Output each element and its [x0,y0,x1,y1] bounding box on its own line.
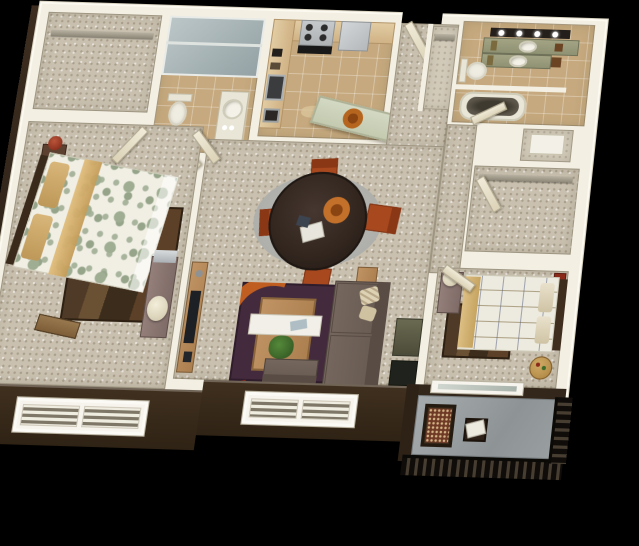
centerpiece-tray [322,196,352,223]
dining-chair-east [363,203,401,234]
window-pane [249,398,299,419]
armless-chair [262,358,319,383]
vanity-sink-1 [518,40,537,52]
facade-living [196,380,415,442]
bath-sink [221,99,244,120]
pillow [534,316,551,344]
vanity-box [551,57,562,67]
window-pane [20,404,81,427]
refrigerator [338,21,372,52]
drum-side-table [528,356,553,380]
window-pane [81,406,141,429]
table-runner [248,313,323,336]
tv [183,291,201,344]
linen-shelf [529,134,566,155]
counter-item [270,62,281,69]
facade-bedroom1 [0,383,202,450]
closet-shelf [51,30,154,39]
room-walk-in-closet-2 [464,165,579,254]
window-pane [301,400,351,421]
shower-glass-rail [166,41,262,47]
closet-shelf [479,174,573,183]
balcony-side-table [463,418,489,442]
room-linen-closet [520,128,574,162]
room-master-bath [451,21,595,126]
living-window [241,392,357,428]
room-walk-in-closet-1 [33,12,163,113]
toilet [167,101,189,126]
floor-plan-scene [0,0,639,546]
sofa-cushion [324,335,372,387]
vanity-light [229,125,235,130]
chair-cushion [425,408,452,443]
counter-item [272,49,283,57]
magazine [290,319,307,331]
dresser-mirror [153,250,177,263]
vanity-counter-lower [480,53,552,69]
bath-vanity [214,91,250,144]
wall-niche-upper [392,318,423,357]
magazine [466,421,485,438]
apartment-plan [0,4,606,488]
closet-shelf [434,34,455,41]
console-item [183,351,193,362]
room-balcony [411,395,563,459]
closet-door [476,175,502,213]
dishwasher [262,108,280,123]
vase [195,270,203,277]
slider-glass [438,384,517,392]
vanity-light [222,125,228,130]
room-bedroom-2 [424,267,569,389]
kitchen-sink [264,74,286,100]
vanity-sink-2 [508,55,527,67]
balcony-chair [420,404,456,448]
range [298,20,335,47]
island-tray [340,106,366,130]
bedroom1-window [12,397,148,435]
room-dining-living [173,139,445,387]
oven-door [297,45,332,54]
wall-niche-lower [388,360,418,386]
balcony-railing-front [400,455,563,481]
toilet [466,62,488,81]
shower-stall [161,16,266,78]
